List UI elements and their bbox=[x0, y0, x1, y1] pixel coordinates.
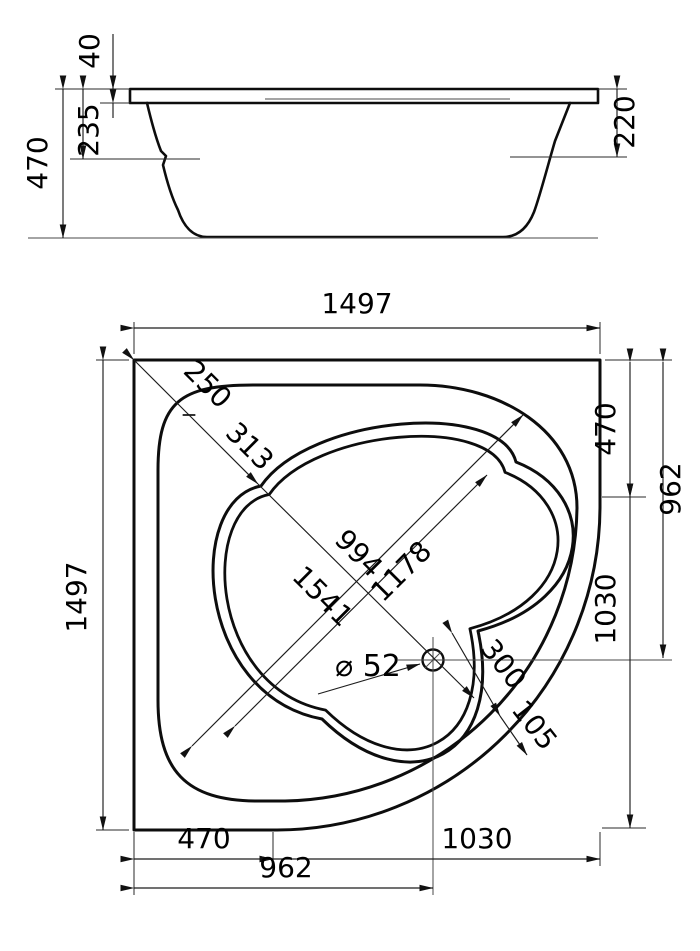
dim-label-right-1030: 1030 bbox=[589, 573, 622, 644]
dim-label-313: 313 bbox=[219, 416, 280, 477]
dim-label-rim-thickness: 40 bbox=[73, 33, 106, 69]
dim-label-rim-to-step: 235 bbox=[72, 103, 105, 156]
dim-label-right-962: 962 bbox=[654, 462, 687, 515]
plan-view: 1497 1497 250 313 994 1541 1178 ⌀ 52 300… bbox=[60, 287, 687, 895]
dim-label-overall-length: 1497 bbox=[60, 561, 93, 632]
technical-drawing-sheet: 470 40 235 220 bbox=[0, 0, 700, 951]
side-view: 470 40 235 220 bbox=[21, 33, 641, 238]
diag-line-250 bbox=[134, 360, 189, 415]
dim-label-drain-diameter: ⌀ 52 bbox=[335, 649, 401, 684]
dim-label-105: 105 bbox=[505, 694, 564, 756]
side-body-profile bbox=[147, 103, 570, 237]
dim-label-rim-to-edge: 220 bbox=[608, 95, 641, 148]
dim-label-bottom-1030: 1030 bbox=[441, 822, 512, 855]
diag-line-1178 bbox=[235, 475, 487, 726]
dim-label-overall-width: 1497 bbox=[321, 287, 392, 320]
side-rim-slab bbox=[130, 89, 598, 103]
dim-label-bottom-470: 470 bbox=[177, 822, 230, 855]
diag-line-1541 bbox=[192, 415, 523, 746]
dim-label-total-height: 470 bbox=[21, 136, 54, 189]
dim-label-1541: 1541 bbox=[286, 559, 360, 633]
bathtub-drawing: 470 40 235 220 bbox=[0, 0, 700, 951]
dim-label-250: 250 bbox=[177, 354, 238, 415]
dim-label-bottom-962: 962 bbox=[259, 851, 312, 884]
dim-label-right-470: 470 bbox=[589, 402, 622, 455]
